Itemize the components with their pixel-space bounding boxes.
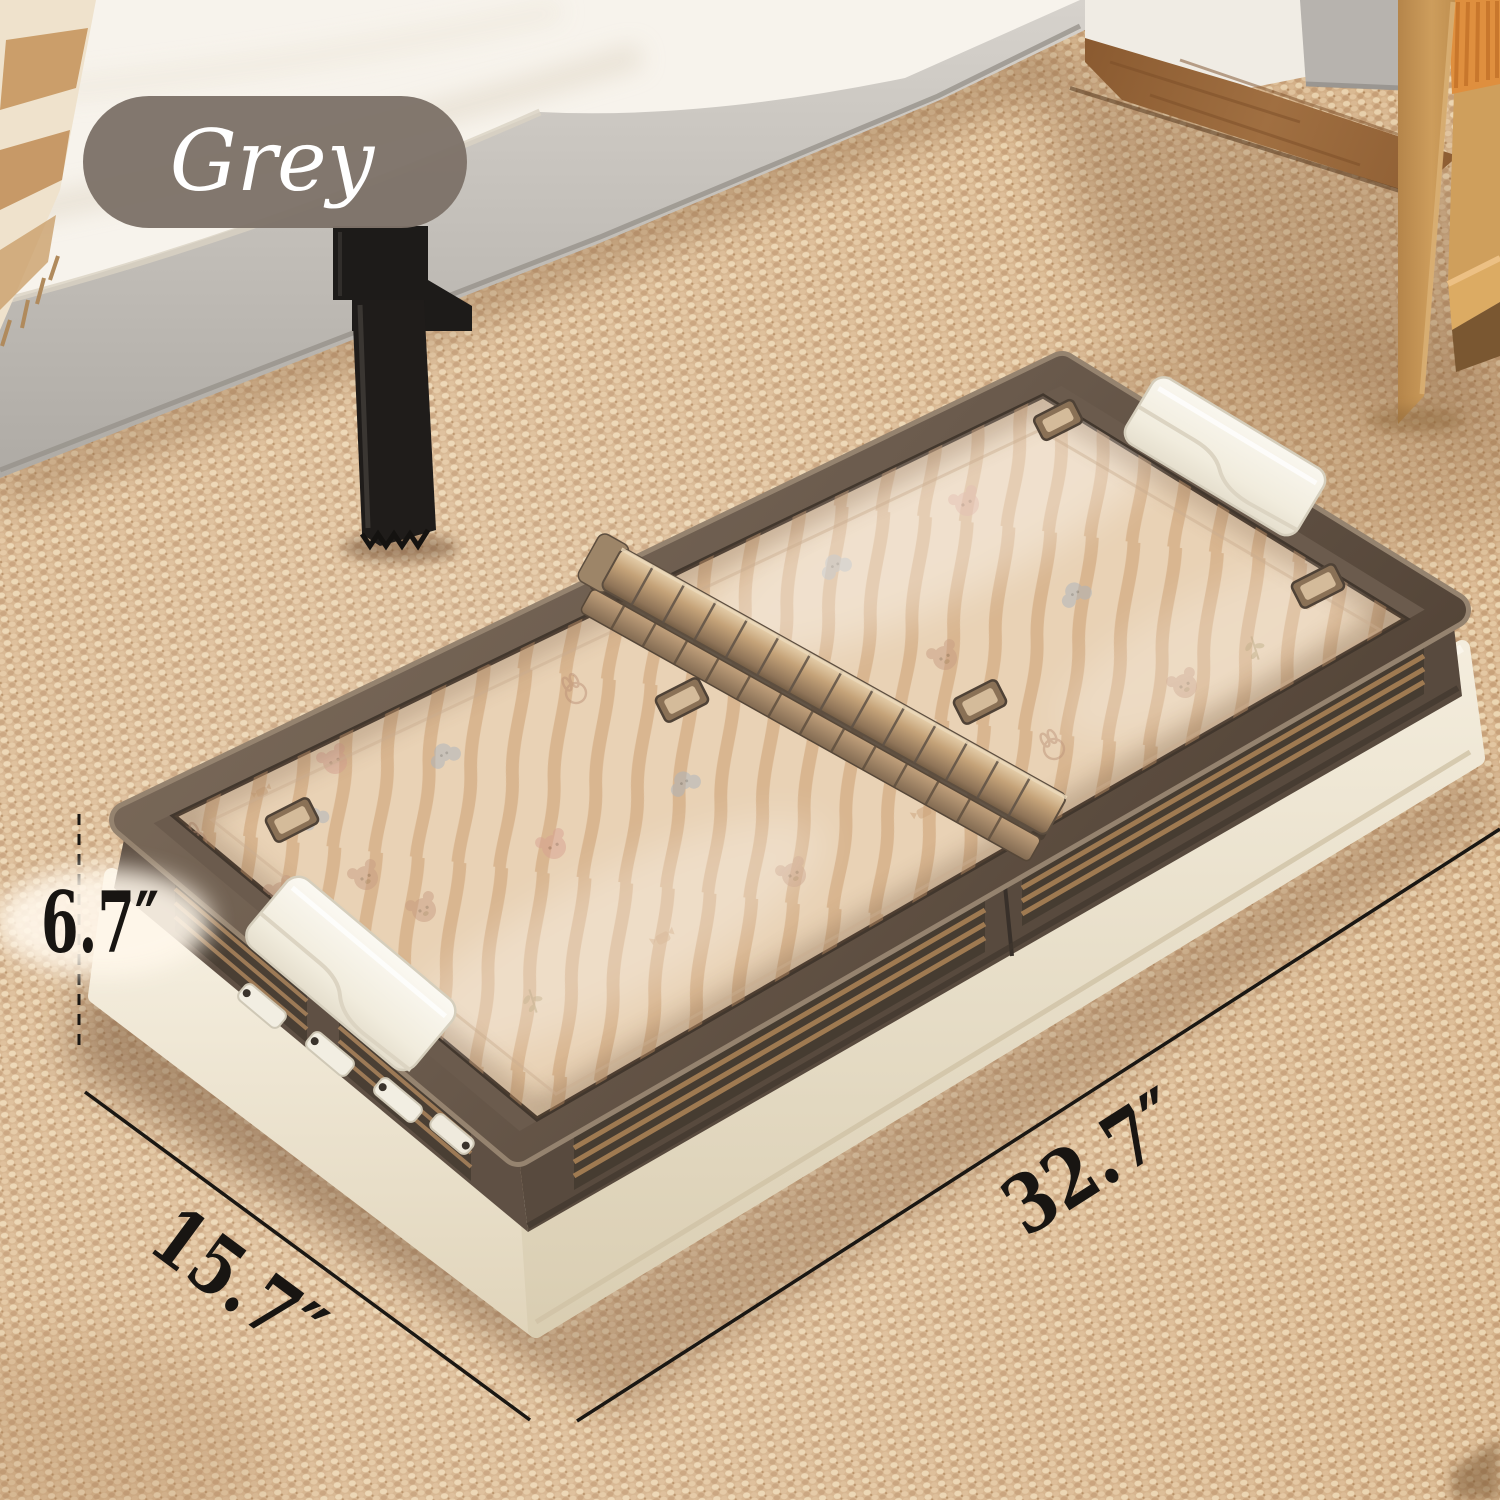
shelf-leg-shadow	[1367, 408, 1463, 432]
height-label: 6.7″	[41, 873, 159, 972]
underbed-storage-box-product-image: Grey 6.7″ 15.7″ 32.7″	[0, 0, 1500, 1500]
grey-cushion	[1300, 0, 1408, 90]
color-badge: Grey	[83, 96, 467, 228]
product-photo-stage: Grey 6.7″ 15.7″ 32.7″	[0, 0, 1500, 1500]
badge-label: Grey	[170, 112, 376, 210]
